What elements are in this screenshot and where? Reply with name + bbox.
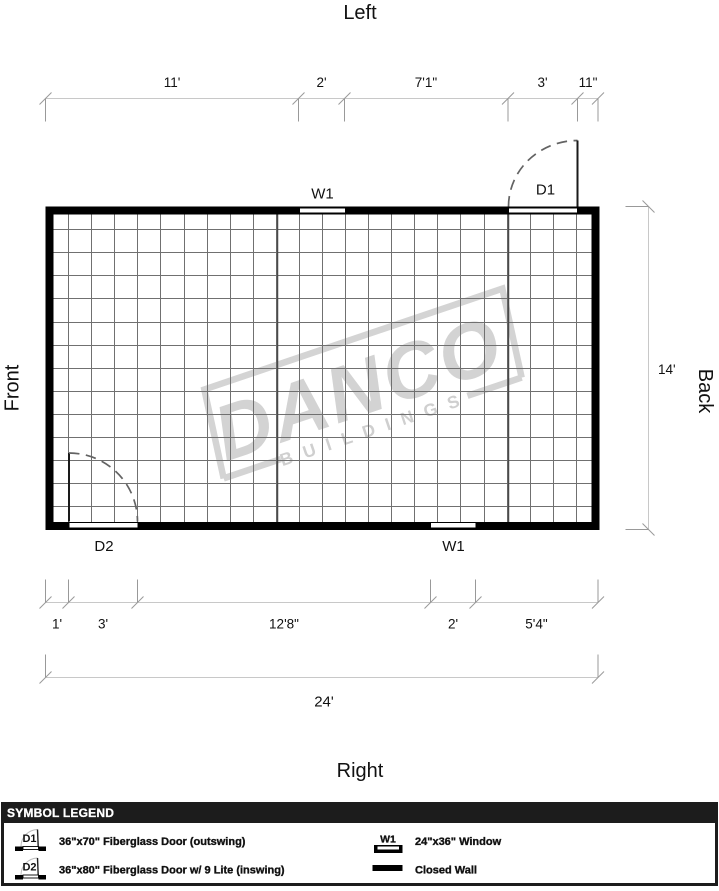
- svg-text:SYMBOL LEGEND: SYMBOL LEGEND: [7, 806, 114, 820]
- svg-text:11": 11": [579, 75, 598, 90]
- svg-text:Back: Back: [694, 369, 716, 414]
- svg-text:1': 1': [52, 617, 62, 632]
- svg-text:Left: Left: [343, 2, 377, 24]
- svg-text:Right: Right: [337, 760, 384, 782]
- svg-text:Closed Wall: Closed Wall: [415, 865, 477, 877]
- svg-text:W1: W1: [311, 186, 334, 203]
- svg-text:D1: D1: [536, 182, 555, 199]
- svg-text:12'8": 12'8": [269, 617, 299, 632]
- svg-text:D1: D1: [22, 833, 36, 845]
- svg-text:3': 3': [98, 617, 108, 632]
- svg-text:36"x80" Fiberglass Door w/ 9 L: 36"x80" Fiberglass Door w/ 9 Lite (inswi…: [59, 865, 285, 877]
- svg-text:W1: W1: [442, 538, 465, 555]
- svg-text:2': 2': [316, 75, 326, 90]
- svg-text:24': 24': [314, 694, 334, 711]
- svg-text:D2: D2: [94, 538, 113, 555]
- svg-text:11': 11': [164, 75, 181, 90]
- svg-text:5'4": 5'4": [525, 617, 548, 632]
- svg-text:W1: W1: [380, 834, 396, 846]
- svg-text:14': 14': [658, 362, 676, 377]
- svg-text:Front: Front: [2, 364, 24, 411]
- svg-text:2': 2': [448, 617, 458, 632]
- svg-text:7'1": 7'1": [415, 75, 438, 90]
- svg-text:D2: D2: [22, 862, 36, 874]
- svg-text:3': 3': [537, 75, 547, 90]
- svg-text:24"x36" Window: 24"x36" Window: [415, 836, 502, 848]
- svg-text:36"x70" Fiberglass Door (outsw: 36"x70" Fiberglass Door (outswing): [59, 836, 246, 848]
